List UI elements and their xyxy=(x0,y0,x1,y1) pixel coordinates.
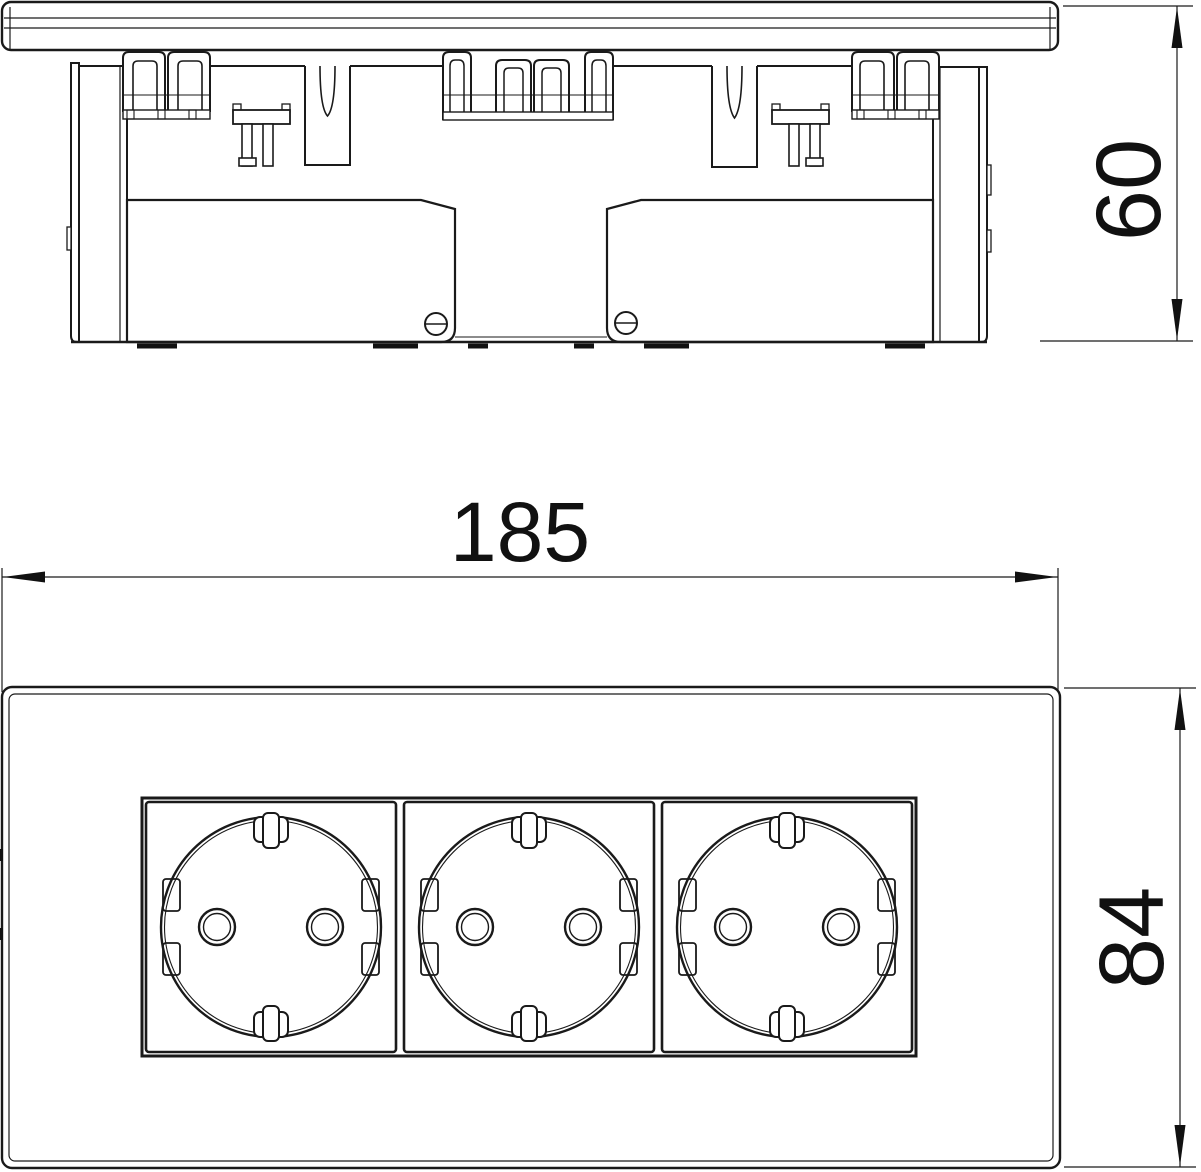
side-view xyxy=(2,2,1058,349)
dimension-width-185: 185 xyxy=(2,485,1058,692)
arrowhead-up-icon xyxy=(1172,7,1183,48)
side-cover-lid xyxy=(2,2,1058,50)
side-housing-right-box xyxy=(607,200,933,342)
arrowhead-left-icon xyxy=(3,572,45,583)
side-right-nub xyxy=(987,165,991,195)
side-latch-left xyxy=(233,104,290,166)
side-latch-right xyxy=(772,104,829,166)
side-pocket-right xyxy=(712,66,757,167)
side-housing-left-box xyxy=(127,200,455,342)
front-view xyxy=(0,687,1060,1168)
arrowhead-up-icon xyxy=(1175,689,1186,730)
side-screw-right xyxy=(615,312,637,334)
socket-gang-2 xyxy=(404,802,654,1052)
front-plate-left-tab2 xyxy=(0,928,3,940)
arrowhead-down-icon xyxy=(1175,1125,1186,1166)
dimension-depth-60: 60 xyxy=(1040,6,1193,341)
socket-gang-3 xyxy=(662,802,912,1052)
side-clip-group-right xyxy=(852,52,939,119)
dimension-drawing-canvas: 60 185 84 xyxy=(0,0,1201,1172)
front-plate-left-tab xyxy=(0,849,3,861)
side-right-nub2 xyxy=(987,230,991,252)
dimension-height-84: 84 xyxy=(1064,688,1196,1167)
side-left-nub xyxy=(67,227,71,250)
side-clip-group-center xyxy=(443,52,613,120)
side-screw-left xyxy=(425,313,447,335)
dimension-width-label: 185 xyxy=(450,485,590,579)
dimension-depth-label: 60 xyxy=(1078,139,1180,241)
dimension-height-label: 84 xyxy=(1081,887,1183,989)
side-pocket-left xyxy=(305,66,350,165)
side-clip-group-left xyxy=(123,52,210,119)
arrowhead-down-icon xyxy=(1172,299,1183,340)
side-left-wall xyxy=(71,63,79,342)
arrowhead-right-icon xyxy=(1015,572,1057,583)
technical-drawing-page: 60 185 84 xyxy=(0,0,1201,1172)
side-right-wall xyxy=(979,67,987,342)
socket-gang-1 xyxy=(146,802,396,1052)
